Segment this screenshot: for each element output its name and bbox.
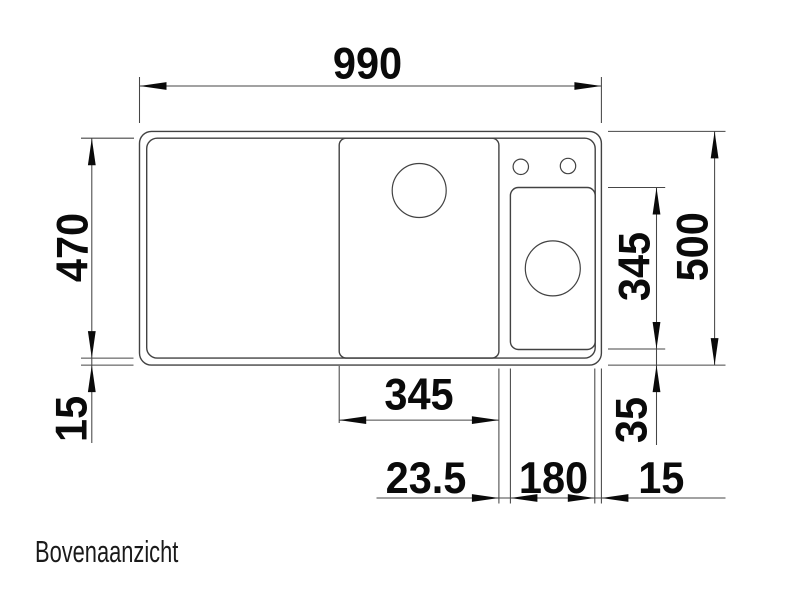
- svg-text:990: 990: [333, 39, 402, 89]
- svg-text:35: 35: [607, 397, 657, 443]
- svg-text:23.5: 23.5: [386, 454, 467, 504]
- svg-text:180: 180: [519, 454, 588, 504]
- svg-text:500: 500: [668, 212, 718, 281]
- svg-text:470: 470: [48, 213, 98, 282]
- svg-text:Bovenaanzicht: Bovenaanzicht: [35, 534, 179, 569]
- svg-text:15: 15: [638, 454, 684, 504]
- svg-text:345: 345: [384, 370, 453, 420]
- svg-text:15: 15: [47, 396, 97, 442]
- svg-text:345: 345: [610, 232, 660, 301]
